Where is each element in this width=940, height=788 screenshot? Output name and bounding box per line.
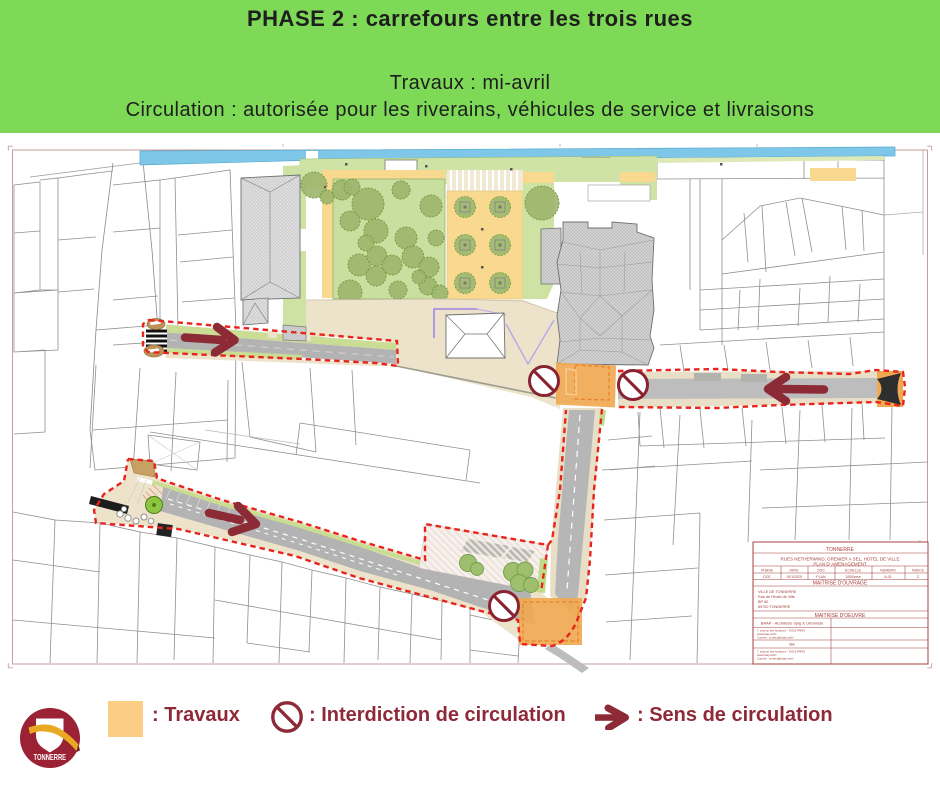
svg-text:7, avenue des fontaines - 7501: 7, avenue des fontaines - 75013 PARIS xyxy=(757,629,805,633)
svg-text:INDICE: INDICE xyxy=(912,568,925,572)
svg-text:7, avenue des fontaines - 7501: 7, avenue des fontaines - 75013 PARIS xyxy=(757,650,805,654)
svg-text:NUMERO: NUMERO xyxy=(880,568,896,572)
svg-text:TONNERRE: TONNERRE xyxy=(826,547,855,553)
svg-text:MAITRISE D'OEUVRE: MAITRISE D'OEUVRE xyxy=(815,613,866,619)
svg-text:Courriel : contact@baap.archi: Courriel : contact@baap.archi xyxy=(757,657,794,661)
svg-text:PHASE: PHASE xyxy=(761,568,774,572)
svg-text:BA: BA xyxy=(789,642,795,647)
svg-text:www.baap.archi: www.baap.archi xyxy=(757,653,777,657)
svg-text:MAITRISE D'OUVRAGE: MAITRISE D'OUVRAGE xyxy=(813,581,868,587)
svg-text:89700 TONNERRE: 89700 TONNERRE xyxy=(758,605,791,609)
svg-text:DOC: DOC xyxy=(817,568,825,572)
svg-text:Rue de l'Hotel de Ville: Rue de l'Hotel de Ville xyxy=(758,595,795,599)
svg-text:ECHELLE: ECHELLE xyxy=(845,568,862,572)
svg-text:Courriel : contact@baap.archi: Courriel : contact@baap.archi xyxy=(757,636,794,640)
svg-text:DCE: DCE xyxy=(763,575,771,579)
svg-text:DATE: DATE xyxy=(789,568,799,572)
svg-text:10/1/2025: 10/1/2025 xyxy=(786,575,802,579)
svg-text:BP 60: BP 60 xyxy=(758,600,768,604)
svg-text:www.baap.archi: www.baap.archi xyxy=(757,632,777,636)
svg-text:A-01: A-01 xyxy=(884,575,891,579)
svg-text:BAAP - Architecte dplg & Urban: BAAP - Architecte dplg & Urbaniste xyxy=(761,621,824,626)
svg-text:RUES NETHERWIND, GRENIER A SEL: RUES NETHERWIND, GRENIER A SEL, HOTEL DE… xyxy=(780,557,899,562)
svg-text:1/500eme: 1/500eme xyxy=(845,575,861,579)
svg-text:TONNERRE: TONNERRE xyxy=(34,752,67,762)
svg-text:VILLE DE TONNERRE: VILLE DE TONNERRE xyxy=(758,590,797,594)
svg-text:PLAN D' AMENAGEMENT: PLAN D' AMENAGEMENT xyxy=(813,561,867,566)
svg-text:PLAN: PLAN xyxy=(816,575,826,579)
